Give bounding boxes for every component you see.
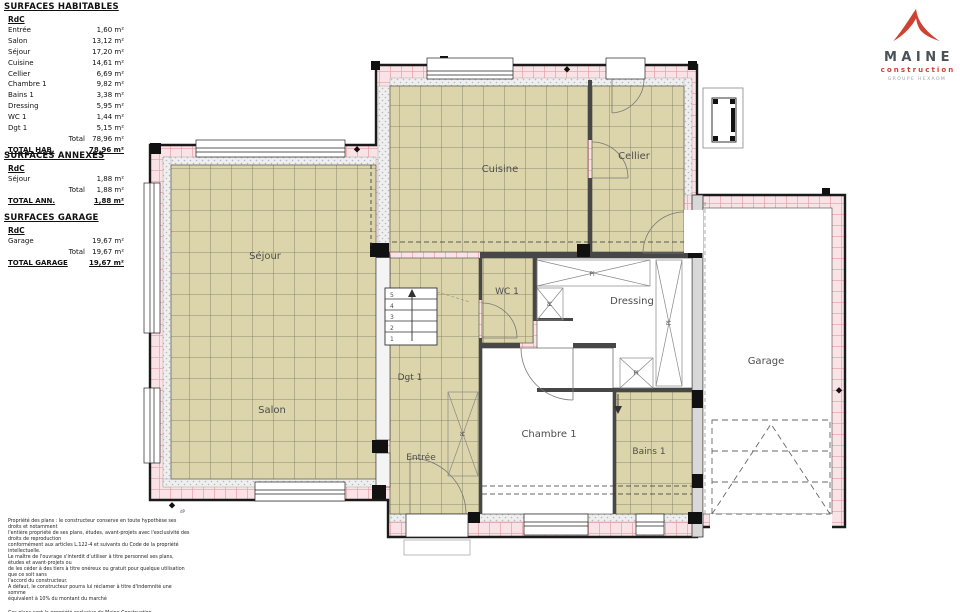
- table-row: Dressing5,95 m²: [4, 102, 124, 113]
- table-row: Garage19,67 m²: [4, 237, 124, 248]
- table-grand-total-row: TOTAL GARAGE19,67 m²: [4, 259, 124, 270]
- legal-line: équivalent à 10% du montant du marché: [8, 597, 228, 603]
- table-row: Chambre 19,82 m²: [4, 80, 124, 91]
- room-label-dressing: Dressing: [610, 296, 654, 307]
- grand-total-value: 19,67 m²: [89, 259, 124, 267]
- row-label: Garage: [8, 237, 34, 245]
- row-value: 5,15 m²: [90, 124, 124, 132]
- row-value: 1,60 m²: [90, 26, 124, 34]
- room-label-garage: Garage: [748, 356, 785, 367]
- room-label-bains: Bains 1: [632, 447, 665, 457]
- total-value: 1,88 m²: [90, 186, 124, 194]
- row-value: 19,67 m²: [90, 237, 124, 245]
- closet-label: Pl: [460, 431, 467, 437]
- window-sejour-top: [196, 140, 345, 157]
- table-title: SURFACES HABITABLES: [4, 2, 124, 12]
- closet-label: Pl: [547, 301, 554, 307]
- table-floor-label: RdC: [8, 226, 124, 235]
- closet-label: Pl: [666, 320, 673, 326]
- grand-total-label: TOTAL GARAGE: [8, 259, 68, 267]
- grand-total-label: TOTAL ANN.: [8, 197, 55, 205]
- floor-wc: [482, 258, 533, 343]
- table-total-row: Total78,96 m²: [4, 135, 124, 146]
- row-value: 17,20 m²: [90, 48, 124, 56]
- row-value: 5,95 m²: [90, 102, 124, 110]
- room-label-salon: Salon: [258, 405, 286, 416]
- table-total-row: Total19,67 m²: [4, 248, 124, 259]
- legal-notice: Propriété des plans : le constructeur co…: [8, 519, 228, 612]
- logo-sub-text: construction: [876, 66, 958, 74]
- row-label: Séjour: [8, 48, 30, 56]
- door-cellier-service: [606, 58, 645, 79]
- table-total-row: Total1,88 m²: [4, 186, 124, 197]
- room-label-dgt: Dgt 1: [398, 373, 423, 383]
- table-surfaces-garage: SURFACES GARAGE RdC Garage19,67 m² Total…: [4, 213, 124, 270]
- logo-tagline: GROUPE HEXAOM: [876, 77, 958, 82]
- door-entree-front: [406, 514, 468, 537]
- row-label: Séjour: [8, 175, 30, 183]
- floor-plan-sheet: { "logo": { "brand": "MAINE", "sub": "co…: [0, 0, 960, 612]
- total-value: 78,96 m²: [90, 135, 124, 143]
- floor-plan-drawing: 5 4 3 2 1 dP Séjour Salon Cuisine Cellie…: [138, 46, 868, 566]
- room-label-sejour: Séjour: [249, 250, 282, 262]
- row-value: 1,88 m²: [90, 175, 124, 183]
- roof-logo-icon: [890, 6, 944, 44]
- row-value: 6,69 m²: [90, 70, 124, 78]
- stair-number: 4: [390, 303, 394, 310]
- window-cuisine-top: [427, 58, 513, 79]
- row-label: Bains 1: [8, 91, 34, 99]
- floor-sejour-salon: [171, 165, 376, 479]
- row-value: 1,44 m²: [90, 113, 124, 121]
- window-chambre-bottom: [524, 514, 588, 535]
- maine-construction-logo: MAINE construction GROUPE HEXAOM: [876, 6, 958, 82]
- row-value: 9,82 m²: [90, 80, 124, 88]
- table-row: Entrée1,60 m²: [4, 26, 124, 37]
- row-label: WC 1: [8, 113, 27, 121]
- table-floor-label: RdC: [8, 164, 124, 173]
- window-sejour-left: [144, 183, 160, 333]
- table-row: Cellier6,69 m²: [4, 70, 124, 81]
- stair-number: 3: [390, 314, 394, 321]
- table-row: Cuisine14,61 m²: [4, 59, 124, 70]
- table-row: WC 11,44 m²: [4, 113, 124, 124]
- stair-number: 2: [390, 325, 394, 332]
- total-value: 19,67 m²: [90, 248, 124, 256]
- table-surfaces-habitables: SURFACES HABITABLES RdC Entrée1,60 m² Sa…: [4, 2, 124, 157]
- row-label: Chambre 1: [8, 80, 47, 88]
- room-label-cellier: Cellier: [618, 151, 651, 162]
- floor-cellier: [592, 86, 684, 252]
- table-title: SURFACES GARAGE: [4, 213, 124, 223]
- row-value: 13,12 m²: [90, 37, 124, 45]
- row-label: Cellier: [8, 70, 30, 78]
- row-label: Cuisine: [8, 59, 34, 67]
- window-bains-bottom: [636, 514, 664, 535]
- room-label-entree: Entrée: [406, 452, 436, 463]
- door-gap-garage-corridor: [684, 210, 703, 253]
- row-value: 14,61 m²: [90, 59, 124, 67]
- water-heater-symbol: [703, 88, 743, 148]
- table-row: Bains 13,38 m²: [4, 91, 124, 102]
- table-row: Salon13,12 m²: [4, 37, 124, 48]
- row-label: Dgt 1: [8, 124, 27, 132]
- row-label: Salon: [8, 37, 27, 45]
- stair-number: 5: [390, 292, 394, 299]
- table-row: Séjour1,88 m²: [4, 175, 124, 186]
- row-label: Entrée: [8, 26, 31, 34]
- table-grand-total-row: TOTAL ANN.1,88 m²: [4, 197, 124, 208]
- grand-total-value: 1,88 m²: [90, 197, 124, 205]
- entry-step: [404, 540, 470, 555]
- garage-door-opening: [710, 514, 832, 537]
- logo-brand-text: MAINE: [876, 50, 958, 65]
- room-label-wc: WC 1: [495, 287, 519, 297]
- table-floor-label: RdC: [8, 15, 124, 24]
- table-row: Dgt 15,15 m²: [4, 124, 124, 135]
- table-title: SURFACES ANNEXES: [4, 151, 124, 161]
- closet-label: Pl: [589, 271, 595, 278]
- stair-number: 1: [390, 336, 394, 343]
- row-label: Dressing: [8, 102, 39, 110]
- table-row: Séjour17,20 m²: [4, 48, 124, 59]
- table-surfaces-annexes: SURFACES ANNEXES RdC Séjour1,88 m² Total…: [4, 151, 124, 208]
- closet-label: Pl: [633, 370, 639, 377]
- total-label: Total: [69, 248, 85, 256]
- total-label: Total: [69, 186, 85, 194]
- room-label-chambre: Chambre 1: [521, 429, 576, 440]
- row-value: 3,38 m²: [90, 91, 124, 99]
- dp-mark: dP: [180, 509, 186, 514]
- total-label: Total: [69, 135, 85, 143]
- room-label-cuisine: Cuisine: [482, 164, 519, 175]
- window-salon-left: [144, 388, 160, 463]
- window-salon-bottom: [255, 482, 345, 501]
